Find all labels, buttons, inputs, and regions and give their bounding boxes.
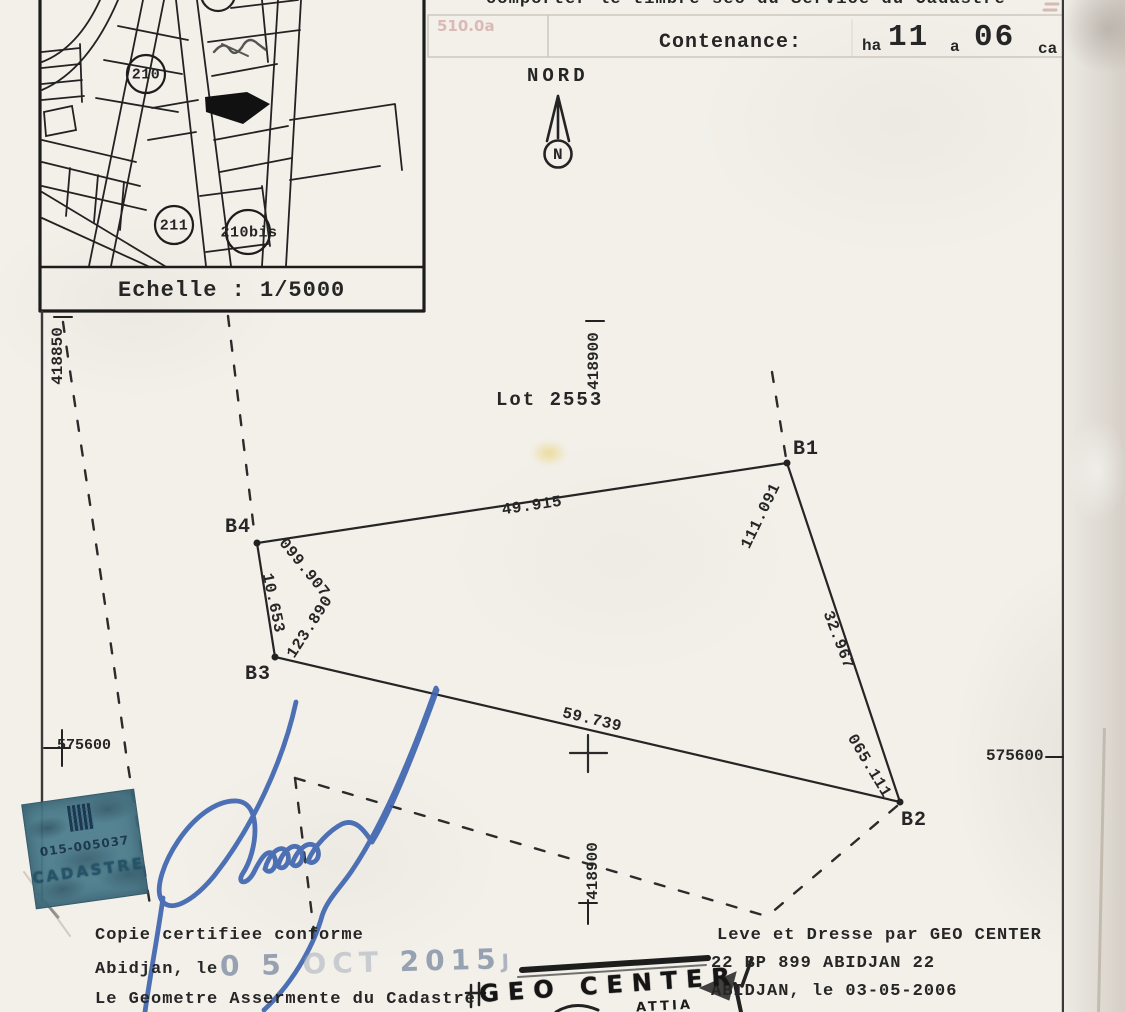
header-instruction-line: comporter le timbre sec du Service du Ca… bbox=[486, 0, 1006, 9]
date-stamp-month: OCT bbox=[302, 945, 384, 980]
contenance-ca-label: ca bbox=[1038, 40, 1057, 58]
contenance-ha-label: ha bbox=[862, 37, 881, 55]
point-label-b3: B3 bbox=[245, 663, 271, 686]
grid-y-right: 575600 bbox=[986, 747, 1044, 765]
lot-label: Lot 2553 bbox=[496, 389, 603, 411]
stamp-barcode-icon bbox=[67, 803, 94, 832]
inset-map-frame bbox=[40, 0, 424, 311]
geo-center-stamp-sub: ATTIA bbox=[636, 998, 694, 1012]
scan-right-margin bbox=[1064, 0, 1125, 1012]
cadastre-revenue-stamp: 015-005037 CADASTRE bbox=[21, 789, 149, 910]
stamp-title: CADASTRE bbox=[31, 854, 144, 887]
point-label-b1: B1 bbox=[793, 438, 819, 461]
footer-bp-address: 22 BP 899 ABIDJAN 22 bbox=[711, 954, 935, 973]
footer-leve-dresse: Leve et Dresse par GEO CENTER bbox=[717, 926, 1042, 945]
grid-y-left: 575600 bbox=[57, 737, 111, 754]
contenance-a-label: a bbox=[950, 38, 960, 56]
paper-smudge bbox=[530, 440, 568, 466]
dashed-construction-lines bbox=[63, 316, 897, 948]
date-stamp-day: 0 5 bbox=[220, 948, 288, 983]
grid-cross-icon bbox=[570, 735, 607, 772]
pen-scrawl bbox=[214, 40, 266, 56]
grid-easting-top: 418900 bbox=[585, 332, 603, 390]
date-stamp-year: 2015 bbox=[399, 942, 502, 978]
north-label: NORD bbox=[527, 65, 589, 87]
scan-shadow-top bbox=[1064, 0, 1125, 95]
inset-scale-label: Echelle : 1/5000 bbox=[118, 278, 345, 303]
footer-abidjan-date: ABIDJAN, le 03-05-2006 bbox=[711, 982, 957, 1001]
ghost-bleed-text: 510.0a bbox=[437, 17, 495, 35]
bleed-through-marks bbox=[1044, 4, 1058, 10]
grid-northing-left: 418850 bbox=[49, 327, 67, 385]
inset-parcel-210-label: 210 bbox=[132, 67, 161, 84]
inset-parcel-210bis-label: 210bis bbox=[220, 225, 277, 242]
scan-highlight bbox=[1070, 400, 1125, 540]
date-stamp-suffix: J bbox=[501, 949, 509, 973]
contenance-label: Contenance: bbox=[659, 31, 802, 54]
contenance-ha-value: 11 bbox=[888, 20, 929, 55]
north-letter: N bbox=[553, 146, 563, 164]
parcel-polygon bbox=[257, 463, 900, 802]
contenance-a-value: 06 bbox=[974, 20, 1015, 55]
inset-subject-parcel bbox=[205, 92, 270, 124]
footer-geometre: Le Geometre Assermente du Cadastre bbox=[95, 990, 476, 1009]
inset-parcel-211-label: 211 bbox=[160, 218, 189, 235]
footer-abidjan-le: Abidjan, le bbox=[95, 960, 218, 979]
cadastral-plan-page: comporter le timbre sec du Service du Ca… bbox=[0, 0, 1125, 1012]
footer-copy-certified: Copie certifiee conforme bbox=[95, 926, 364, 945]
scan-crease bbox=[1097, 728, 1106, 1012]
point-label-b2: B2 bbox=[901, 809, 927, 832]
grid-easting-bottom: 418900 bbox=[584, 842, 602, 900]
point-label-b4: B4 bbox=[225, 516, 251, 539]
